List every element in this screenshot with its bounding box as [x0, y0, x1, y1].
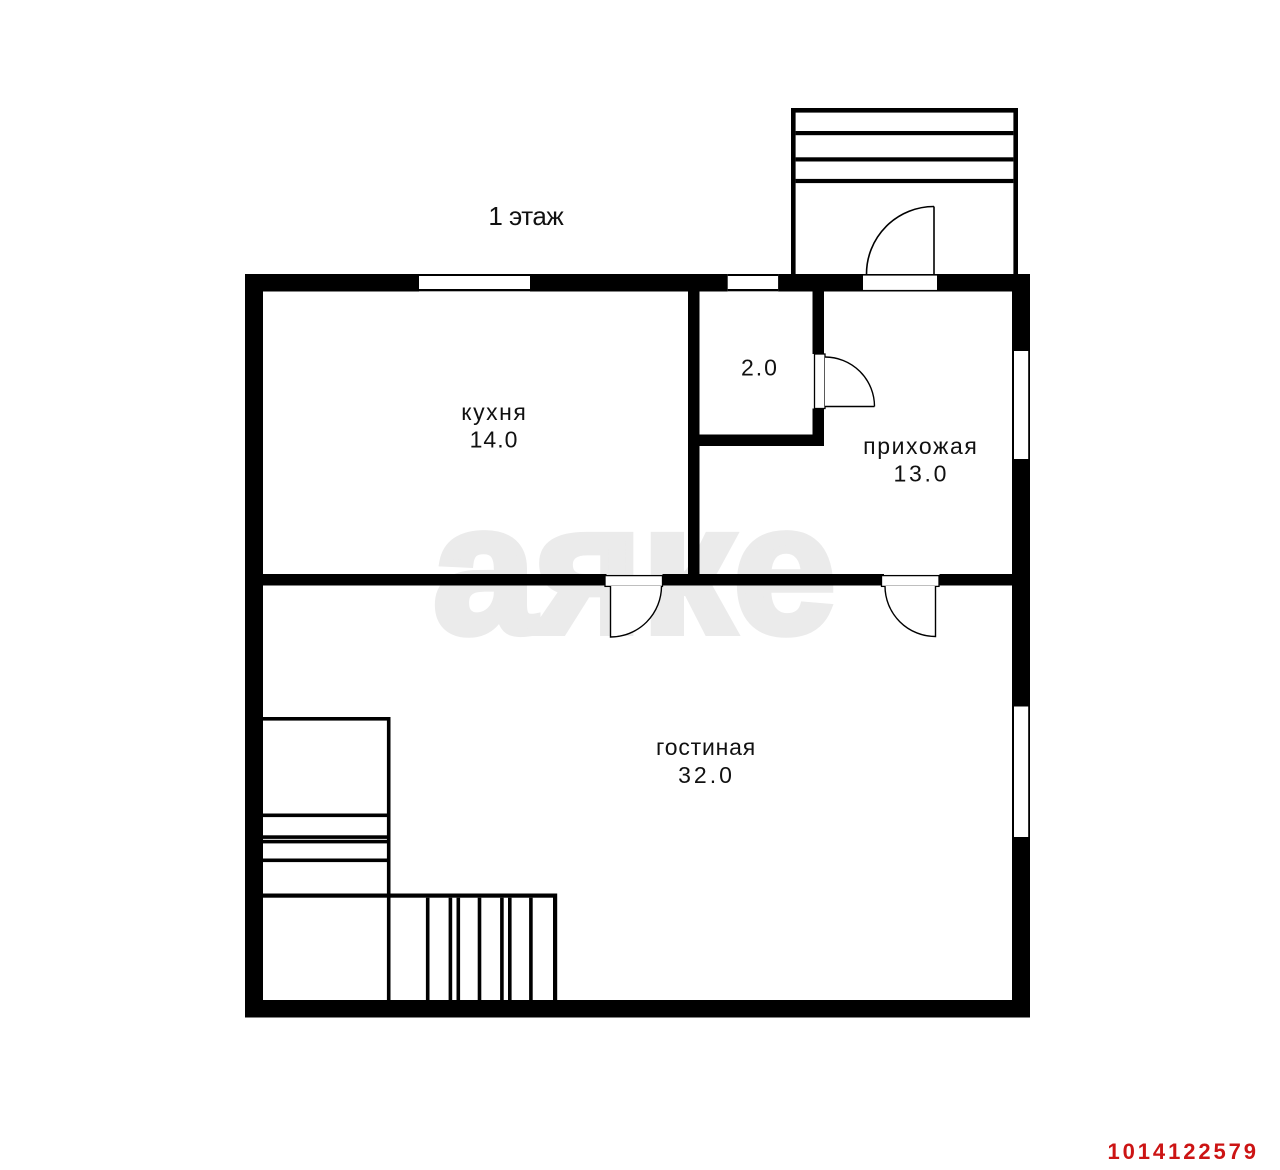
- svg-text:кухня: кухня: [461, 399, 527, 425]
- svg-text:14.0: 14.0: [470, 427, 519, 453]
- svg-text:гостиная: гостиная: [656, 734, 756, 760]
- svg-text:13.0: 13.0: [894, 461, 950, 487]
- svg-text:1014122579: 1014122579: [1108, 1139, 1259, 1164]
- svg-text:1 этаж: 1 этаж: [488, 201, 564, 231]
- svg-text:аяке: аяке: [434, 467, 836, 671]
- svg-text:32.0: 32.0: [678, 762, 735, 788]
- svg-text:2.0: 2.0: [741, 355, 779, 381]
- svg-text:прихожая: прихожая: [863, 433, 978, 459]
